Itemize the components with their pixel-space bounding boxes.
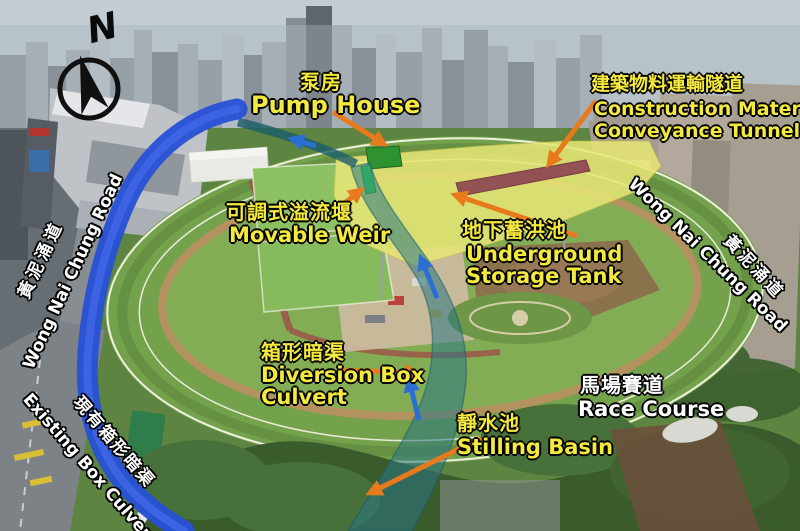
movable-weir-label-en: Movable Weir [229, 224, 390, 246]
pump-house-label-zh: 泵房 [300, 72, 342, 93]
diversion-culvert-label-en1: Diversion Box [261, 364, 424, 386]
stilling-basin-label-zh: 靜水池 [457, 413, 520, 434]
diversion-culvert-label-zh: 箱形暗渠 [261, 342, 345, 363]
stilling-basin-label-en: Stilling Basin [457, 436, 613, 458]
pump-house-label-en: Pump House [251, 93, 420, 118]
storage-tank-label-zh: 地下蓄洪池 [462, 220, 567, 241]
conveyance-tunnel-label-zh: 建築物料運輸隧道 [591, 75, 743, 95]
conveyance-tunnel-label-en1: Construction Material [594, 100, 800, 120]
diversion-culvert-label-en2: Culvert [261, 386, 347, 408]
conveyance-tunnel-label-en2: Conveyance Tunnel [594, 122, 800, 142]
movable-weir-label-zh: 可調式溢流堰 [226, 202, 352, 223]
race-course-label-zh: 馬場賽道 [580, 375, 664, 396]
storage-tank-label-en1: Underground [466, 243, 622, 265]
race-course-label-en: Race Course [578, 398, 724, 420]
storage-tank-label-en2: Storage Tank [466, 265, 621, 287]
annotated-aerial-photo: N 泵房 Pump House 建築物料運輸隧道 Construction Ma… [0, 0, 800, 531]
